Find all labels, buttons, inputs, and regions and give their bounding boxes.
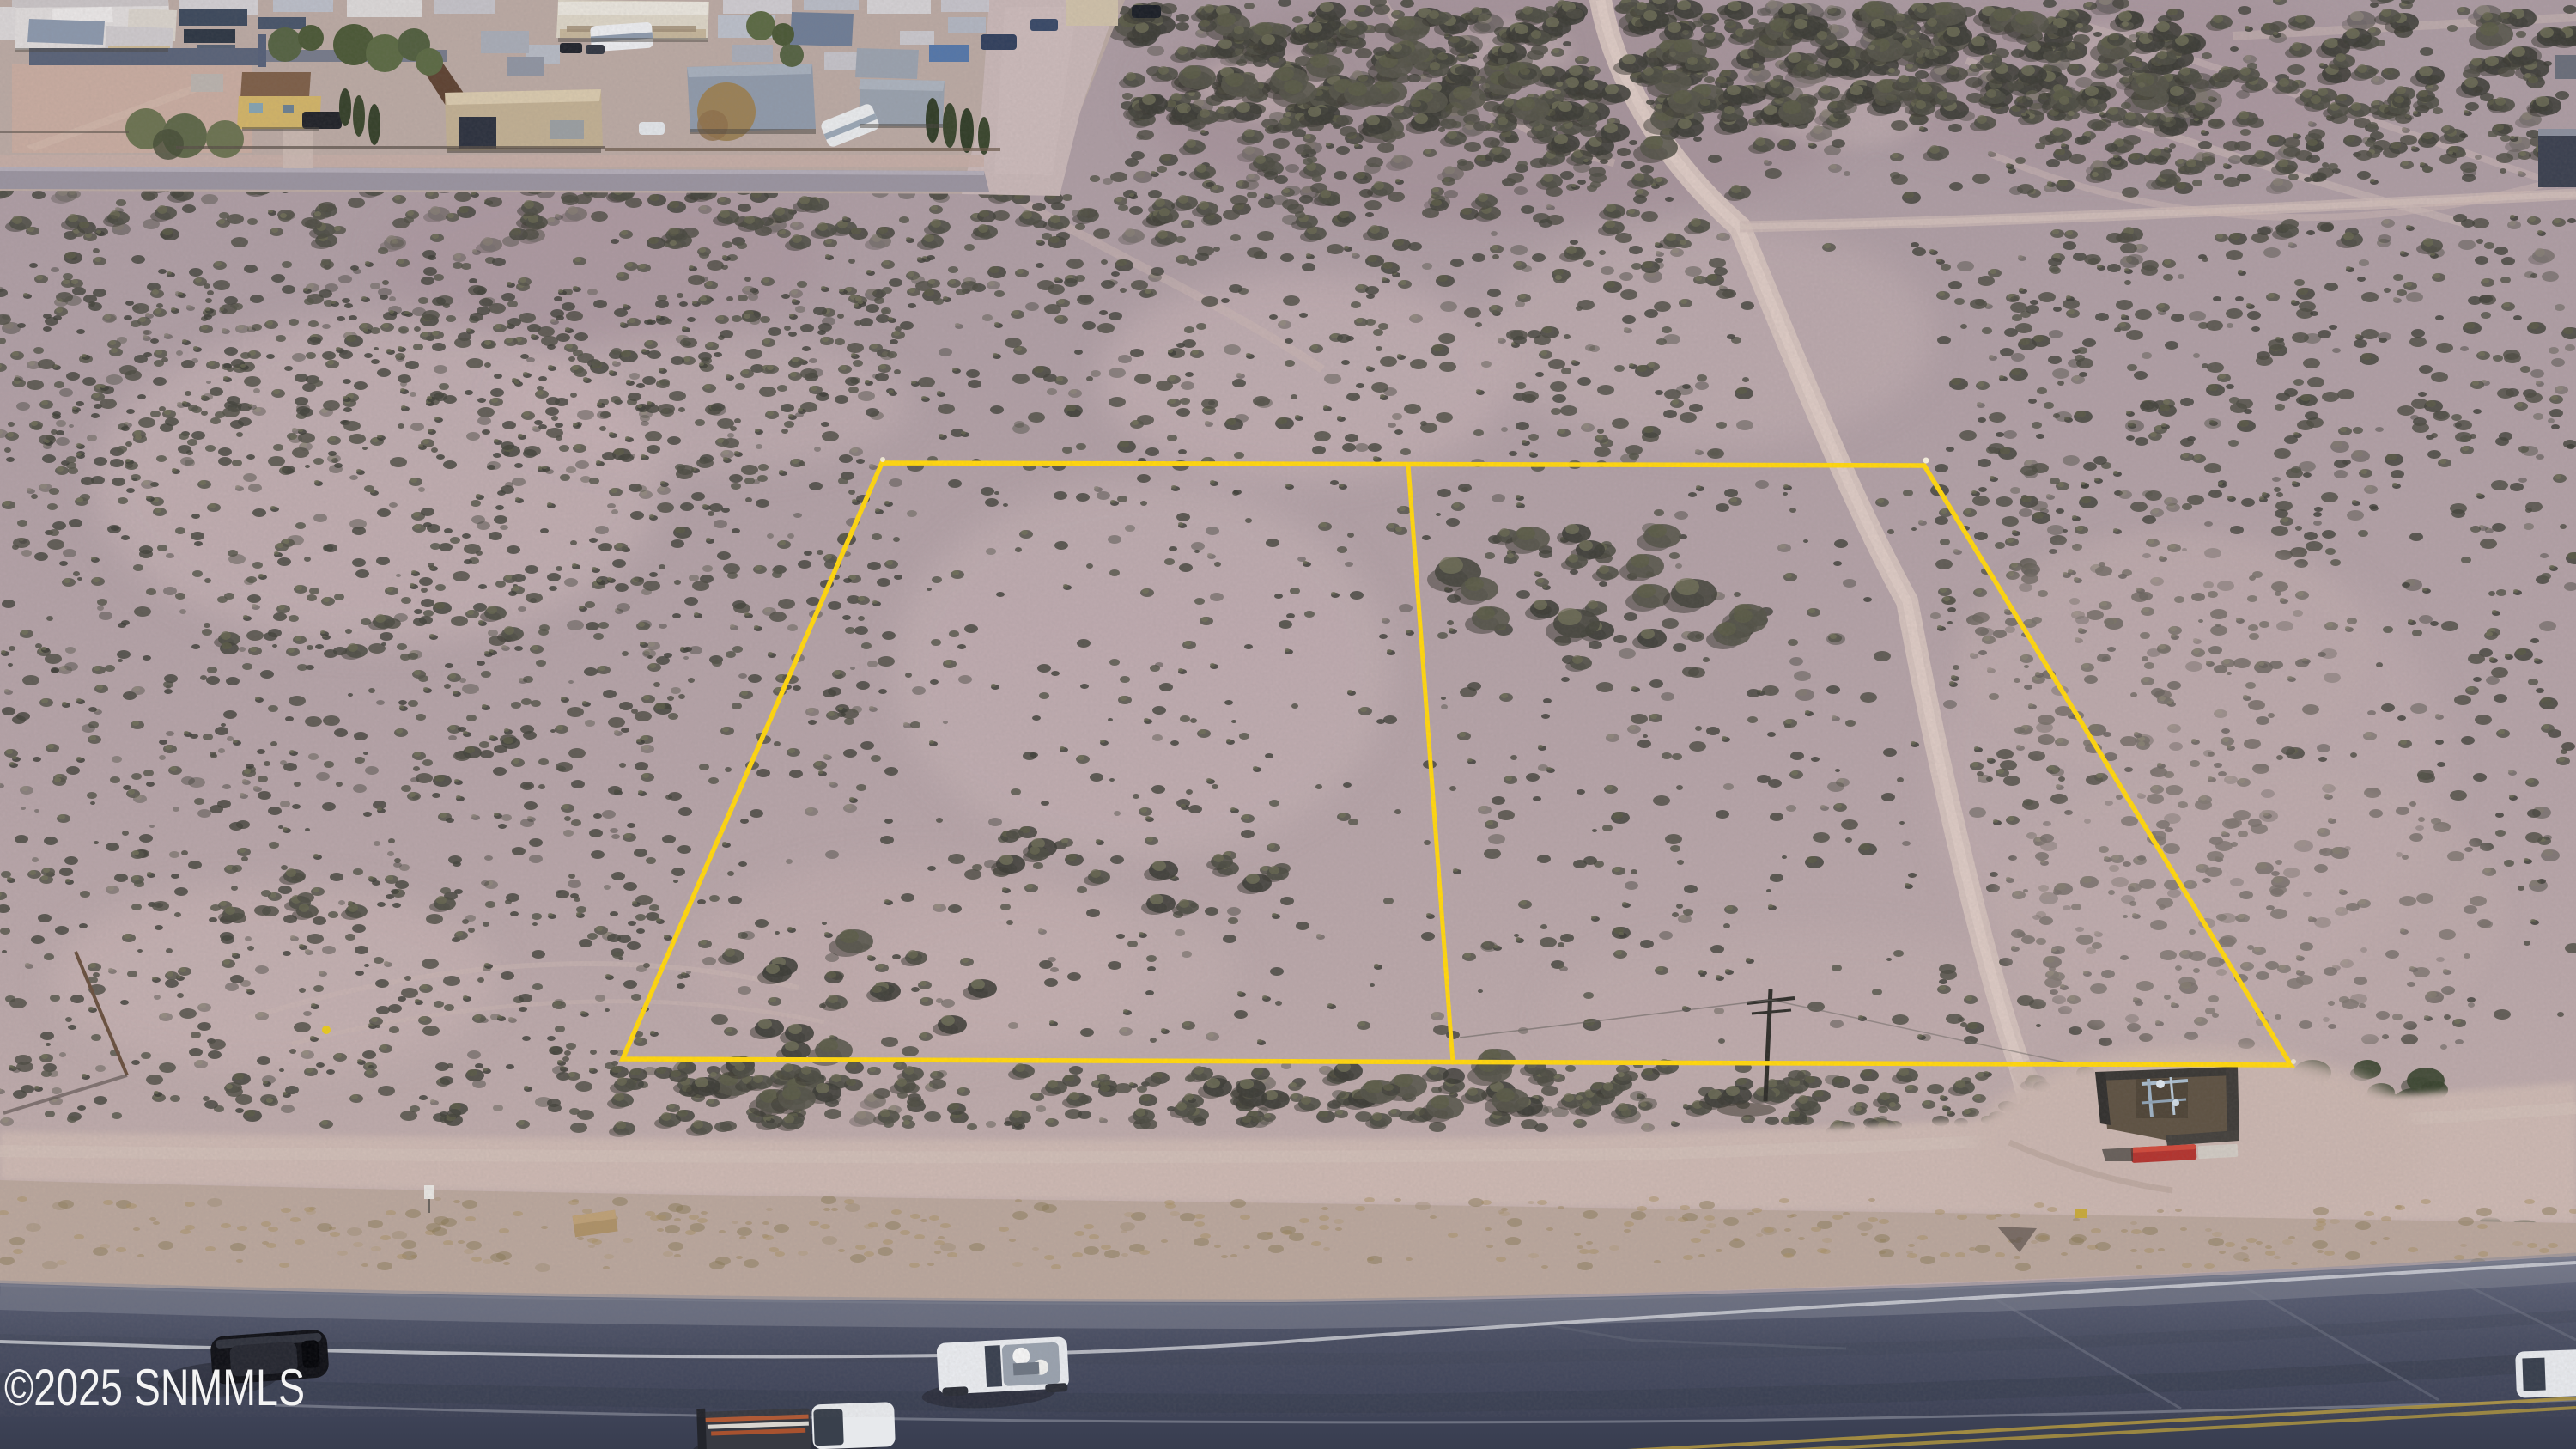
svg-text:©2025 SNMMLS: ©2025 SNMMLS [4, 1359, 305, 1416]
